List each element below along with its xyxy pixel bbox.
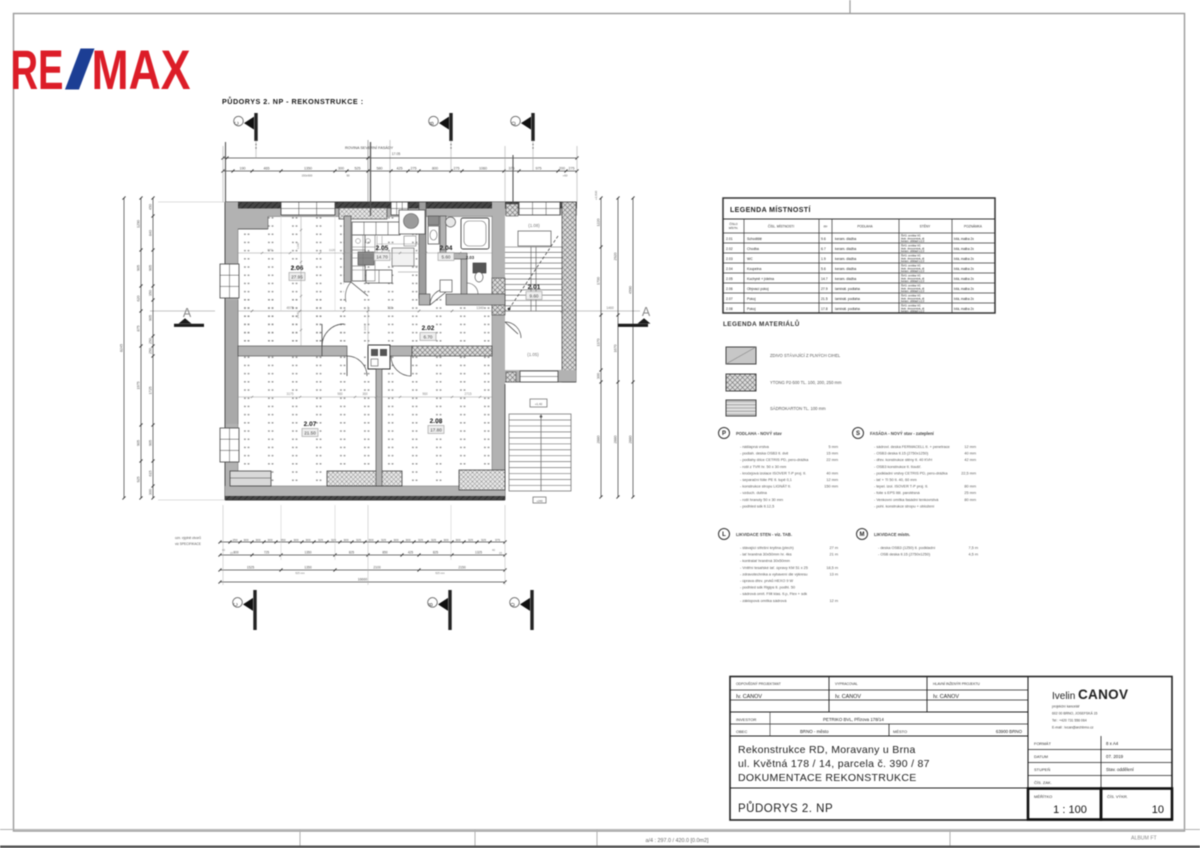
svg-text:- kročejová izolace ISOVER T-P: - kročejová izolace ISOVER T-P proj. tl. — [740, 471, 806, 475]
svg-text:- rošt hranoly 50 x 30 mm: - rošt hranoly 50 x 30 mm — [740, 498, 783, 502]
svg-text:25 mm: 25 mm — [964, 491, 976, 495]
svg-text:1290: 1290 — [137, 220, 141, 228]
svg-text:ODPOVĚDNÝ PROJEKTANT: ODPOVĚDNÝ PROJEKTANT — [736, 681, 781, 686]
svg-text:laminát. podlaha: laminát. podlaha — [835, 307, 860, 311]
svg-text:Chodba: Chodba — [747, 247, 759, 251]
svg-text:940: 940 — [363, 325, 367, 330]
svg-text:325: 325 — [468, 538, 473, 542]
svg-text:21.5: 21.5 — [821, 297, 828, 301]
svg-text:- podhled sdk Rigips tl. po: - podhled sdk Rigips tl. podhl. 50 — [740, 586, 795, 590]
svg-text:+1,42: +1,42 — [535, 402, 543, 406]
svg-text:CANOV: CANOV — [1078, 687, 1128, 702]
svg-text:8 x A4: 8 x A4 — [1106, 741, 1119, 746]
svg-text:615: 615 — [149, 471, 153, 477]
svg-text:- deska OSB3 (1250) tl. podkla: - deska OSB3 (1250) tl. podkladní — [878, 546, 936, 550]
svg-text:905: 905 — [137, 440, 141, 446]
svg-text:+240: +240 — [536, 499, 543, 503]
svg-text:375: 375 — [509, 167, 515, 171]
svg-text:710: 710 — [387, 306, 393, 310]
svg-text:325: 325 — [318, 538, 323, 542]
svg-text:1220: 1220 — [597, 219, 601, 227]
svg-text:905: 905 — [137, 265, 141, 271]
svg-text:bílá, malba 2x: bílá, malba 2x — [954, 267, 974, 271]
svg-text:+60: +60 — [563, 174, 568, 178]
svg-text:keram. obklad v.2,0: keram. obklad v.2,0 — [901, 269, 925, 273]
svg-text:1325: 1325 — [475, 551, 482, 555]
svg-text:- Vnitřní tesařské lať. úprav: - Vnitřní tesařské lať. úpravy KM 51 x 2… — [740, 566, 808, 570]
svg-text:1975: 1975 — [137, 382, 141, 390]
svg-text:bílá, malba 2x: bílá, malba 2x — [954, 287, 974, 291]
svg-text:MAX: MAX — [92, 38, 191, 101]
svg-text:2.01: 2.01 — [726, 237, 733, 241]
svg-text:PETRIKO BVL, Přízova 178/14: PETRIKO BVL, Přízova 178/14 — [823, 717, 884, 722]
svg-text:a/4 : 297.0 / 420.0 [0.0m2: a/4 : 297.0 / 420.0 [0.0m2] — [646, 838, 709, 844]
svg-text:Obývací pokoj: Obývací pokoj — [747, 287, 769, 291]
svg-text:keram. obklad v.2,0: keram. obklad v.2,0 — [901, 279, 925, 283]
svg-text:350: 350 — [280, 538, 285, 542]
svg-text:2880: 2880 — [614, 436, 618, 444]
svg-text:viz SPECIFIKACE: viz SPECIFIKACE — [175, 542, 201, 546]
svg-text:250: 250 — [149, 338, 153, 344]
svg-text:PODLAHA - NOVÝ stav: PODLAHA - NOVÝ stav — [736, 431, 782, 436]
svg-text:825: 825 — [349, 551, 355, 555]
svg-text:2920: 2920 — [614, 253, 618, 261]
svg-text:300: 300 — [305, 538, 310, 542]
svg-text:FASÁDA - NOVÝ stav - zatepl: FASÁDA - NOVÝ stav - zateplení — [870, 431, 935, 436]
svg-text:PŮDORYS 2. NP: PŮDORYS 2. NP — [738, 802, 833, 815]
svg-text:1 : 100: 1 : 100 — [1053, 804, 1087, 816]
svg-text:7,5 m: 7,5 m — [969, 546, 979, 550]
svg-text:80 mm: 80 mm — [964, 498, 976, 502]
svg-text:Iv. CANOV: Iv. CANOV — [835, 694, 861, 700]
svg-text:350: 350 — [149, 290, 153, 296]
svg-text:4,5 m: 4,5 m — [969, 553, 979, 557]
svg-text:RE: RE — [11, 38, 64, 101]
svg-text:275: 275 — [454, 167, 460, 171]
svg-text:250: 250 — [149, 348, 153, 354]
svg-text:2.04: 2.04 — [726, 267, 733, 271]
svg-text:- rošt z TVR hr. 50 x 30 mm: - rošt z TVR hr. 50 x 30 mm — [740, 465, 786, 469]
svg-text:LIKVIDACE místn.: LIKVIDACE místn. — [874, 532, 910, 537]
svg-text:10: 10 — [1152, 804, 1164, 816]
svg-text:2.07: 2.07 — [304, 421, 317, 428]
svg-text:2150: 2150 — [458, 566, 466, 570]
svg-text:602 00 BRNO, JOSEFSKÁ 15: 602 00 BRNO, JOSEFSKÁ 15 — [1052, 712, 1098, 716]
svg-text:- OSB3 deska tl.15 (2750x1250): - OSB3 deska tl.15 (2750x1250) — [874, 452, 929, 456]
svg-text:Ivelin: Ivelin — [1052, 691, 1075, 702]
svg-text:M: M — [860, 532, 865, 538]
svg-text:OBEC: OBEC — [736, 729, 747, 734]
svg-text:580: 580 — [377, 167, 383, 171]
svg-text:B: B — [430, 121, 436, 125]
svg-text:B: B — [429, 602, 435, 606]
svg-text:Pokoj: Pokoj — [747, 307, 756, 311]
svg-text:C: C — [235, 121, 241, 125]
svg-text:15 mm: 15 mm — [826, 452, 838, 456]
svg-text:ZDIVO STÁVAJÍCÍ Z PLNÝCH CIHEL: ZDIVO STÁVAJÍCÍ Z PLNÝCH CIHEL — [770, 353, 841, 358]
svg-text:905: 905 — [149, 440, 153, 446]
svg-text:laminát. podlaha: laminát. podlaha — [835, 287, 860, 291]
svg-text:27.95: 27.95 — [291, 275, 303, 280]
svg-text:- úprava dřev. prvků HEXO 9 W: - úprava dřev. prvků HEXO 9 W — [740, 579, 794, 583]
svg-text:- podkladní vrstvy CETRIS PD,: - podkladní vrstvy CETRIS PD, pero-drážk… — [874, 471, 948, 475]
svg-text:15: 15 — [499, 551, 502, 555]
svg-text:keram. obklad v.2,0: keram. obklad v.2,0 — [901, 259, 925, 263]
svg-text:ozn. výplně otvorů: ozn. výplně otvorů — [175, 536, 201, 540]
svg-text:07. 2019: 07. 2019 — [1106, 754, 1124, 759]
svg-text:SÁDROKARTON TL. 100 mm: SÁDROKARTON TL. 100 mm — [770, 406, 826, 411]
svg-text:D: D — [512, 121, 518, 125]
svg-text:525: 525 — [355, 167, 361, 171]
svg-text:2.08: 2.08 — [726, 307, 733, 311]
svg-text:- sádrovl. deska FERMACELL tl.: - sádrovl. deska FERMACELL tl. + penetra… — [874, 445, 950, 449]
svg-text:905: 905 — [382, 248, 387, 252]
svg-text:- záklopová omítka sádrová: - záklopová omítka sádrová — [740, 599, 787, 603]
svg-text:bílá, malba 2x: bílá, malba 2x — [954, 257, 974, 261]
svg-text:16660: 16660 — [358, 577, 368, 581]
svg-text:80 mm: 80 mm — [964, 485, 976, 489]
svg-text:300: 300 — [443, 538, 448, 542]
svg-text:40 mm: 40 mm — [964, 452, 976, 456]
svg-text:6.7: 6.7 — [821, 247, 826, 251]
svg-text:WC: WC — [747, 257, 753, 261]
svg-text:Kuchyně + jídelna: Kuchyně + jídelna — [747, 277, 774, 281]
svg-text:- zdravotechnika a vybavení dl: - zdravotechnika a vybavení dle výkresu — [740, 572, 808, 576]
svg-text:- konstrukce stropu LIGNÁT tl.: - konstrukce stropu LIGNÁT tl. — [740, 485, 791, 489]
svg-text:800: 800 — [432, 167, 438, 171]
svg-text:BRNO - město: BRNO - město — [800, 729, 829, 734]
svg-text:- podlah. deska OSB3 tl. dvě: - podlah. deska OSB3 tl. dvě — [740, 452, 788, 456]
svg-text:bílá, malba 2x: bílá, malba 2x — [954, 277, 974, 281]
svg-text:POZNÁMKA: POZNÁMKA — [964, 225, 983, 229]
svg-text:905: 905 — [149, 265, 153, 271]
svg-text:800: 800 — [233, 551, 239, 555]
svg-text:6.70: 6.70 — [424, 335, 433, 340]
svg-text:1525: 1525 — [247, 566, 255, 570]
svg-text:725: 725 — [264, 551, 270, 555]
svg-text:projekční kancelář: projekční kancelář — [1052, 705, 1080, 709]
svg-text:Rekonstrukce RD, Moravany u: Rekonstrukce RD, Moravany u Brna — [738, 744, 916, 756]
svg-text:825: 825 — [433, 551, 439, 555]
svg-text:625 mm: 625 mm — [295, 571, 304, 575]
svg-text:- stávající střešní krytina (: - stávající střešní krytina (plech) — [740, 546, 794, 550]
svg-text:425: 425 — [397, 167, 403, 171]
svg-text:Pokoj: Pokoj — [747, 297, 756, 301]
svg-text:27 m: 27 m — [830, 546, 838, 550]
svg-text:HLAVNÍ INŽENÝR PROJEKTU: HLAVNÍ INŽENÝR PROJEKTU — [933, 681, 980, 686]
svg-text:975: 975 — [536, 167, 542, 171]
svg-text:keram. dlažba: keram. dlažba — [835, 277, 856, 281]
svg-text:840: 840 — [149, 230, 153, 236]
svg-text:m²: m² — [824, 225, 828, 229]
svg-text:laminát. podlaha: laminát. podlaha — [835, 297, 860, 301]
svg-text:- podlahy dílce CETRIS PD, per: - podlahy dílce CETRIS PD, pero-drážka — [740, 458, 809, 462]
svg-text:1725: 1725 — [149, 387, 153, 395]
svg-text:360: 360 — [362, 392, 368, 396]
svg-text:keram. obklad v.2,0: keram. obklad v.2,0 — [901, 299, 925, 303]
svg-text:300: 300 — [393, 538, 398, 542]
svg-text:- pohl. konstrukce stropu + ob: - pohl. konstrukce stropu + obložení — [874, 504, 935, 508]
svg-text:- sádrová omít. FIlit klas. tl: - sádrová omít. FIlit klas. tl.p, Flex +… — [740, 592, 807, 596]
svg-text:1460: 1460 — [606, 306, 614, 310]
svg-text:9.60: 9.60 — [530, 294, 539, 299]
svg-text:ČÍSL. MÍSTNOSTI: ČÍSL. MÍSTNOSTI — [768, 224, 794, 229]
svg-text:300: 300 — [368, 538, 373, 542]
svg-text:63900 BRNO: 63900 BRNO — [996, 729, 1023, 734]
svg-text:- podhled sdk tl.12,5: - podhled sdk tl.12,5 — [740, 504, 774, 508]
svg-text:(1.08): (1.08) — [528, 223, 540, 228]
svg-text:300: 300 — [293, 538, 298, 542]
svg-text:1340: 1340 — [476, 306, 484, 310]
svg-text:925: 925 — [137, 477, 141, 483]
svg-text:2.06: 2.06 — [726, 287, 733, 291]
svg-text:9.6: 9.6 — [821, 237, 826, 241]
svg-text:- folie s EPS lišt. parotěsná: - folie s EPS lišt. parotěsná — [874, 491, 920, 495]
svg-text:12 m: 12 m — [830, 599, 838, 603]
svg-text:LEGENDA MATERIÁLŮ: LEGENDA MATERIÁLŮ — [723, 318, 800, 328]
svg-text:- kontralať hraněná 30x50mm: - kontralať hraněná 30x50mm — [740, 559, 790, 563]
svg-text:1350: 1350 — [304, 551, 311, 555]
svg-text:13 m: 13 m — [830, 572, 838, 576]
svg-text:760: 760 — [440, 248, 445, 252]
svg-text:2.03: 2.03 — [466, 255, 475, 260]
svg-text:2.02: 2.02 — [422, 325, 435, 332]
svg-text:- separační fólie PE tl. tupě: - separační fólie PE tl. tupě 0,1 — [740, 478, 792, 482]
svg-text:STUPEŇ: STUPEŇ — [1034, 767, 1050, 772]
svg-text:22,5 mm: 22,5 mm — [961, 471, 976, 475]
svg-text:Stav. oddělení: Stav. oddělení — [1106, 767, 1135, 772]
svg-text:620: 620 — [137, 296, 141, 302]
svg-text:190: 190 — [240, 167, 246, 171]
svg-text:1350: 1350 — [304, 566, 312, 570]
svg-text:300: 300 — [597, 373, 601, 379]
svg-text:14.70: 14.70 — [376, 255, 388, 260]
svg-text:- nášlapná vrstva: - nášlapná vrstva — [740, 445, 770, 449]
svg-text:960: 960 — [422, 392, 428, 396]
svg-text:625 mm: 625 mm — [435, 571, 444, 575]
svg-text:18,5 m: 18,5 m — [826, 566, 838, 570]
svg-text:275: 275 — [569, 167, 575, 171]
svg-text:ul. Květná 178 / 14, parc: ul. Květná 178 / 14, parcela č. 390 / 87 — [738, 758, 930, 770]
svg-text:5.60: 5.60 — [442, 255, 451, 260]
svg-text:ALBUM FT: ALBUM FT — [1131, 836, 1157, 842]
svg-text:325: 325 — [381, 538, 386, 542]
svg-text:2440: 2440 — [296, 311, 300, 318]
svg-text:300: 300 — [455, 538, 460, 542]
svg-text:1700: 1700 — [597, 277, 601, 285]
svg-text:D: D — [511, 602, 517, 606]
svg-text:2.07: 2.07 — [726, 297, 733, 301]
svg-text:Tel : +420 731 556 064: Tel : +420 731 556 064 — [1052, 719, 1087, 723]
svg-text:2880: 2880 — [629, 436, 633, 444]
svg-text:keram. dlažba: keram. dlažba — [835, 257, 856, 261]
svg-text:2.01: 2.01 — [528, 284, 541, 291]
svg-text:1060: 1060 — [479, 167, 487, 171]
svg-text:STĚNY: STĚNY — [920, 224, 932, 229]
svg-text:27.9: 27.9 — [821, 287, 828, 291]
svg-text:Koupelna: Koupelna — [747, 267, 761, 271]
svg-text:22 mm: 22 mm — [826, 458, 838, 462]
svg-text:MĚŘÍTKO: MĚŘÍTKO — [1034, 794, 1052, 799]
svg-text:- OSB deska tl.15 (2750x1250): - OSB deska tl.15 (2750x1250) — [878, 553, 931, 557]
svg-text:MÍSTN.: MÍSTN. — [729, 226, 739, 230]
svg-text:A: A — [183, 306, 192, 320]
svg-text:375: 375 — [495, 538, 500, 542]
svg-text:150 mm: 150 mm — [824, 485, 838, 489]
svg-text:300: 300 — [267, 538, 272, 542]
svg-text:bílá, malba 2x: bílá, malba 2x — [954, 297, 974, 301]
svg-text:905: 905 — [149, 315, 153, 321]
svg-text:ČÍS. ZAK.: ČÍS. ZAK. — [1034, 780, 1052, 785]
svg-text:2.08: 2.08 — [430, 418, 443, 425]
svg-text:- vzduch. dutina: - vzduch. dutina — [740, 491, 768, 495]
svg-text:300: 300 — [149, 489, 153, 495]
svg-text:Iv. CANOV: Iv. CANOV — [933, 694, 959, 700]
svg-text:17.8: 17.8 — [821, 307, 828, 311]
svg-text:keram. obklad v.2,0: keram. obklad v.2,0 — [901, 249, 925, 253]
svg-text:850: 850 — [382, 551, 388, 555]
svg-text:2880: 2880 — [597, 436, 601, 444]
svg-text:2.05: 2.05 — [726, 277, 733, 281]
svg-text:275: 275 — [411, 167, 417, 171]
svg-text:425: 425 — [408, 551, 414, 555]
svg-text:keram. dlažba: keram. dlažba — [835, 247, 856, 251]
svg-text:1370: 1370 — [597, 339, 601, 347]
svg-text:300: 300 — [255, 538, 260, 542]
svg-text:14.7: 14.7 — [821, 277, 828, 281]
svg-text:S: S — [856, 431, 860, 437]
svg-text:1.9: 1.9 — [821, 257, 826, 261]
svg-text:90: 90 — [346, 174, 350, 178]
svg-text:1670: 1670 — [614, 345, 618, 353]
svg-text:300: 300 — [405, 538, 410, 542]
svg-text:12 mm: 12 mm — [964, 445, 976, 449]
svg-text:40: 40 — [492, 548, 495, 552]
svg-text:150x900: 150x900 — [302, 174, 313, 178]
svg-text:42 mm: 42 mm — [964, 458, 976, 462]
svg-text:325: 325 — [356, 538, 361, 542]
svg-text:2.06: 2.06 — [291, 265, 304, 272]
svg-text:870: 870 — [267, 248, 272, 252]
svg-text:- tepel. izol. ISOVER T-P proj: - tepel. izol. ISOVER T-P proj. tl. — [874, 485, 928, 489]
svg-text:- Venkovní omítka fasádní ten: - Venkovní omítka fasádní tenkovrstvá — [874, 498, 939, 502]
svg-text:300: 300 — [343, 538, 348, 542]
svg-text:Iv. CANOV: Iv. CANOV — [736, 694, 762, 700]
svg-text:FORMÁT: FORMÁT — [1034, 741, 1051, 746]
svg-text:3175: 3175 — [286, 392, 293, 396]
svg-text:325: 325 — [481, 538, 486, 542]
svg-text:2.03: 2.03 — [726, 257, 733, 261]
svg-text:17.05: 17.05 — [392, 152, 401, 156]
svg-text:40: 40 — [222, 548, 225, 552]
svg-text:465: 465 — [264, 167, 270, 171]
svg-text:21.50: 21.50 — [304, 431, 316, 436]
svg-text:4590: 4590 — [629, 286, 633, 294]
svg-text:2100: 2100 — [373, 566, 381, 570]
svg-text:ROVINA SEVERNÍ FASÁDY: ROVINA SEVERNÍ FASÁDY — [345, 146, 394, 150]
svg-text:- lať hraněná 30x50mm hr. 4k: - lať hraněná 30x50mm hr. 4ks — [740, 553, 792, 557]
svg-text:bílá, malba 2x: bílá, malba 2x — [954, 237, 974, 241]
svg-text:4975: 4975 — [286, 306, 294, 310]
svg-text:325: 325 — [331, 538, 336, 542]
svg-text:300: 300 — [338, 167, 344, 171]
svg-text:LIKVIDACE STEN - viz. TAB.: LIKVIDACE STEN - viz. TAB. — [736, 532, 792, 537]
svg-text:DOKUMENTACE REKONSTRUKCE: DOKUMENTACE REKONSTRUKCE — [738, 772, 917, 784]
svg-text:450: 450 — [149, 204, 153, 210]
svg-text:bílá, malba 2x: bílá, malba 2x — [954, 307, 974, 311]
svg-text:keram. dlažba: keram. dlažba — [835, 237, 856, 241]
svg-text:2715: 2715 — [464, 392, 471, 396]
svg-text:PODLAHA: PODLAHA — [857, 225, 873, 229]
svg-text:P: P — [722, 431, 726, 437]
svg-text:12 mm: 12 mm — [826, 478, 838, 482]
svg-text:1290: 1290 — [296, 242, 300, 249]
svg-text:8245: 8245 — [120, 344, 124, 352]
svg-text:YTONG P2-500 TL. 100, 200, 2: YTONG P2-500 TL. 100, 200, 250 mm — [770, 380, 842, 385]
svg-text:ČÍS. VÝKR.: ČÍS. VÝKR. — [1107, 794, 1128, 799]
svg-text:250: 250 — [232, 538, 237, 542]
svg-text:- dřev. konstrukce stěny tl. 4: - dřev. konstrukce stěny tl. 40 KVH — [874, 458, 932, 462]
svg-text:200: 200 — [559, 167, 565, 171]
svg-text:keram. obklad v.2,0: keram. obklad v.2,0 — [901, 289, 925, 293]
svg-text:C: C — [234, 602, 240, 606]
svg-text:E-mail : ivcan@archbrno.cz: E-mail : ivcan@archbrno.cz — [1052, 726, 1094, 730]
svg-text:2.02: 2.02 — [726, 247, 733, 251]
svg-text:A: A — [642, 305, 651, 319]
svg-text:5.6: 5.6 — [821, 267, 826, 271]
svg-text:L: L — [722, 532, 726, 538]
svg-text:INVESTOR: INVESTOR — [736, 717, 756, 722]
svg-text:DATUM: DATUM — [1034, 754, 1048, 759]
svg-text:325: 325 — [431, 538, 436, 542]
svg-text:Schodiště: Schodiště — [747, 237, 762, 241]
svg-text:1350: 1350 — [304, 167, 312, 171]
svg-text:PŮDORYS 2. NP - REKONSTRUKCE: PŮDORYS 2. NP - REKONSTRUKCE : — [222, 96, 364, 106]
svg-text:300: 300 — [243, 538, 248, 542]
svg-text:980: 980 — [337, 392, 343, 396]
svg-text:+2,830: +2,830 — [594, 190, 598, 200]
svg-text:1120: 1120 — [329, 248, 336, 252]
svg-text:17.80: 17.80 — [430, 428, 442, 433]
svg-text:21 m: 21 m — [830, 553, 838, 557]
svg-text:(1.05): (1.05) — [527, 352, 539, 357]
svg-text:5 mm: 5 mm — [829, 445, 839, 449]
svg-text:keram. obklad v.2,0: keram. obklad v.2,0 — [901, 239, 925, 243]
svg-text:keram. dlažba: keram. dlažba — [835, 267, 856, 271]
svg-text:- OSB3 konstrukce tl. tloušť.: - OSB3 konstrukce tl. tloušť. — [874, 465, 921, 469]
svg-text:875: 875 — [137, 326, 141, 332]
svg-text:- lať + TI 50 tl. 40, 60 mm: - lať + TI 50 tl. 40, 60 mm — [874, 478, 917, 482]
svg-text:bílá, malba 2x: bílá, malba 2x — [954, 247, 974, 251]
svg-text:LEGENDA MÍSTNOSTÍ: LEGENDA MÍSTNOSTÍ — [730, 205, 811, 214]
svg-text:325: 325 — [418, 538, 423, 542]
svg-text:VYPRACOVAL: VYPRACOVAL — [835, 682, 858, 686]
svg-text:40 mm: 40 mm — [826, 471, 838, 475]
svg-text:keram. obklad v.2,0: keram. obklad v.2,0 — [901, 309, 925, 313]
svg-text:MĚSTO: MĚSTO — [893, 729, 907, 734]
